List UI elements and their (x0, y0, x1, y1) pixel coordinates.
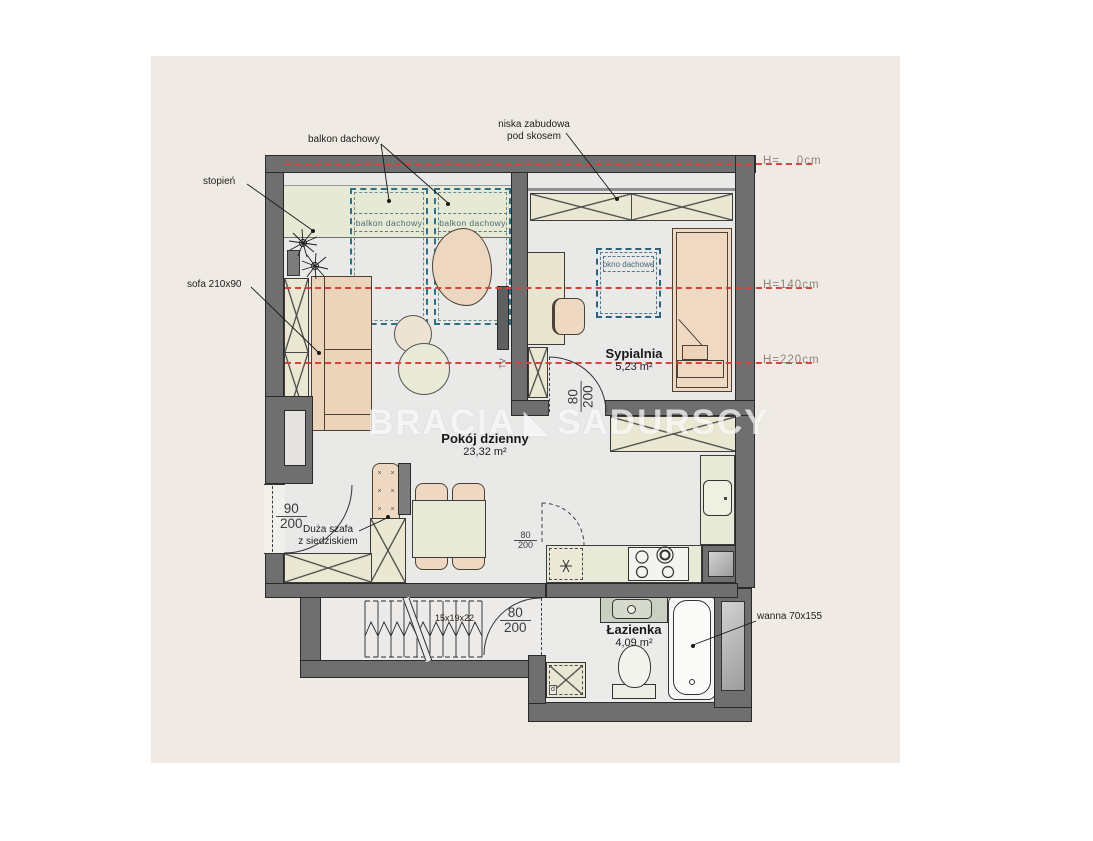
wall-stair-bottom (300, 660, 546, 678)
callout-wanna: wanna 70x155 (757, 611, 822, 623)
wall-mounted-unit (287, 250, 300, 276)
okno-dachowe-label: okno dachowe (603, 256, 654, 272)
tv-unit (497, 286, 509, 350)
height-label-0: H= 0cm (763, 155, 822, 167)
wall-living-bottom (265, 583, 546, 598)
callout-sofa: sofa 210x90 (187, 279, 242, 291)
room-label-bedroom: Sypialnia 5,23 m² (584, 346, 684, 373)
balkon-dachowy-label-1: balkon dachowy (354, 213, 424, 232)
bathroom-sink (612, 599, 652, 619)
room-label-bathroom: Łazienka 4,09 m² (592, 622, 676, 649)
sofa (311, 276, 372, 431)
brand-watermark: BRACIA◣SADURSCY (368, 403, 770, 443)
wall-pier (398, 463, 411, 515)
stove (628, 547, 689, 581)
slope-edge-line (528, 188, 735, 191)
wall-kitchen (546, 583, 738, 598)
washer-mark: d (549, 685, 557, 695)
wall-divider (511, 172, 528, 416)
okno-dachowe-zone: okno dachowe (596, 248, 661, 318)
dining-table (412, 500, 486, 558)
height-line-220 (285, 362, 812, 364)
duct-niche (721, 601, 745, 691)
kitchen-sink-unit (549, 548, 583, 580)
wall-right (735, 155, 755, 588)
callout-balkon-dachowy: balkon dachowy (308, 134, 380, 146)
tv-label: TV (499, 349, 508, 369)
wardrobe-under-slope (530, 193, 733, 221)
stairs-dimension: 15x19x22 (433, 613, 476, 623)
door-bathroom-leaf (541, 598, 542, 655)
floor-plan-page: balkon dachowy balkon dachowy TV okno da… (0, 0, 1093, 841)
wall-bath-right (714, 588, 752, 708)
toilet-bowl (618, 645, 651, 688)
callout-niska-zabudowa: niska zabudowa pod skosem (498, 119, 570, 143)
door-kitchen-dimension: 80 200 (514, 531, 537, 551)
callout-duza-szafa: Duża szafa z siedziskiem (296, 524, 360, 548)
door-bathroom-dimension: 80 200 (500, 606, 531, 635)
watermark-text-left: BRACIA (368, 403, 516, 443)
wall-stair-left (300, 597, 321, 662)
wall-niche (284, 410, 306, 466)
door-left-leaf (272, 486, 273, 552)
height-label-140: H=140cm (763, 279, 820, 291)
brand-triangle-icon: ◣ (524, 408, 549, 438)
watermark-text-right: SADURSCY (557, 403, 769, 443)
wall-chimney (265, 396, 313, 484)
wall-step-connector (528, 655, 546, 704)
pouf-large (398, 343, 450, 395)
bedside-cabinet (528, 347, 548, 398)
szafa-lower (370, 518, 406, 583)
desk-chair (552, 298, 585, 335)
sink-right (703, 480, 732, 516)
height-line-140 (285, 287, 812, 289)
height-label-220: H=220cm (763, 354, 820, 366)
washing-machine: d (546, 662, 586, 698)
szafa-seat: ×××××× (372, 463, 400, 520)
callout-stopien: stopień (203, 176, 235, 188)
bench-bottom-left (284, 553, 372, 583)
height-line-0 (285, 163, 812, 165)
